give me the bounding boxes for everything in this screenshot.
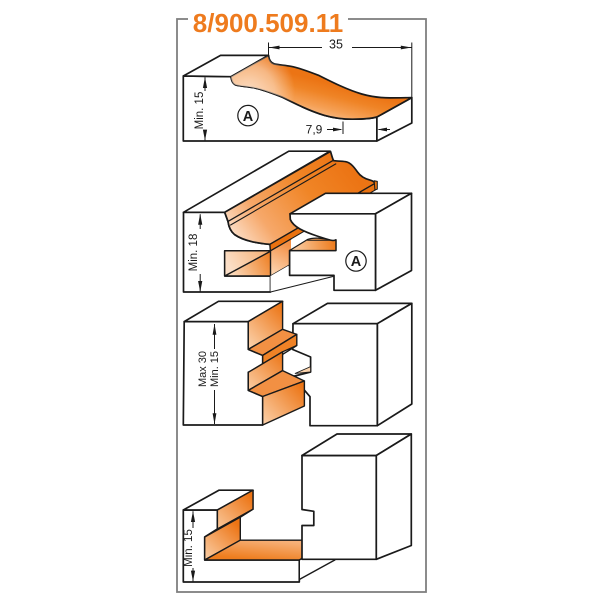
svg-text:Min. 15: Min. 15 bbox=[183, 529, 195, 567]
svg-text:35: 35 bbox=[329, 38, 343, 52]
svg-text:Min. 15: Min. 15 bbox=[209, 351, 221, 387]
svg-text:A: A bbox=[351, 254, 362, 270]
svg-text:8/900.509.11: 8/900.509.11 bbox=[193, 8, 343, 38]
svg-text:Max 30: Max 30 bbox=[197, 351, 209, 387]
svg-text:Min. 15: Min. 15 bbox=[194, 92, 206, 130]
svg-text:A: A bbox=[243, 109, 254, 125]
svg-text:Min. 18: Min. 18 bbox=[188, 234, 200, 272]
svg-text:7,9: 7,9 bbox=[306, 123, 323, 137]
